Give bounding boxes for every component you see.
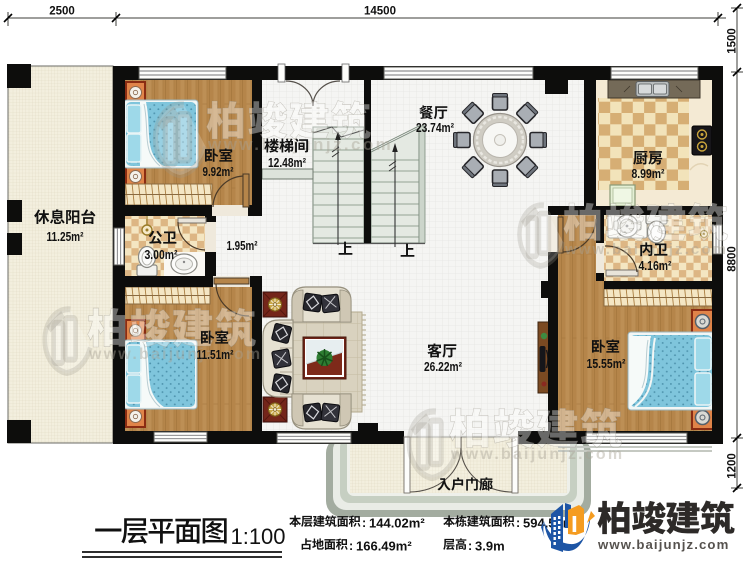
svg-text:12.48m²: 12.48m² bbox=[268, 155, 306, 170]
svg-text:15.55m²: 15.55m² bbox=[587, 356, 626, 371]
svg-text:23.74m²: 23.74m² bbox=[416, 120, 454, 135]
svg-text:11.51m²: 11.51m² bbox=[197, 347, 234, 362]
svg-text:3.00m²: 3.00m² bbox=[145, 247, 178, 262]
svg-text::: : bbox=[349, 539, 353, 553]
svg-text:11.25m²: 11.25m² bbox=[47, 229, 84, 244]
svg-text:www.baijunjz.com: www.baijunjz.com bbox=[450, 446, 624, 463]
svg-text::: : bbox=[362, 516, 366, 530]
svg-text:8.99m²: 8.99m² bbox=[632, 166, 665, 181]
svg-text:www.baijunjz.com: www.baijunjz.com bbox=[88, 346, 262, 363]
svg-text:3.9m: 3.9m bbox=[475, 539, 505, 554]
svg-text:1.95m²: 1.95m² bbox=[227, 238, 258, 253]
svg-text:26.22m²: 26.22m² bbox=[424, 359, 462, 374]
svg-text:1:100: 1:100 bbox=[230, 524, 285, 549]
svg-text:166.49m²: 166.49m² bbox=[356, 539, 412, 554]
svg-text:8800: 8800 bbox=[727, 246, 739, 272]
svg-text:2500: 2500 bbox=[49, 6, 75, 18]
svg-text:14500: 14500 bbox=[364, 6, 396, 18]
svg-text:4.16m²: 4.16m² bbox=[639, 258, 672, 273]
svg-text:www.baijunjz.com: www.baijunjz.com bbox=[597, 537, 729, 552]
svg-text:9.92m²: 9.92m² bbox=[203, 164, 234, 179]
svg-text::: : bbox=[516, 516, 520, 530]
svg-text::: : bbox=[468, 539, 472, 553]
svg-text:1500: 1500 bbox=[727, 28, 739, 54]
svg-text:www.baijunjz.com: www.baijunjz.com bbox=[207, 135, 393, 154]
svg-text:1200: 1200 bbox=[727, 453, 739, 479]
svg-text:144.02m²: 144.02m² bbox=[369, 516, 425, 531]
